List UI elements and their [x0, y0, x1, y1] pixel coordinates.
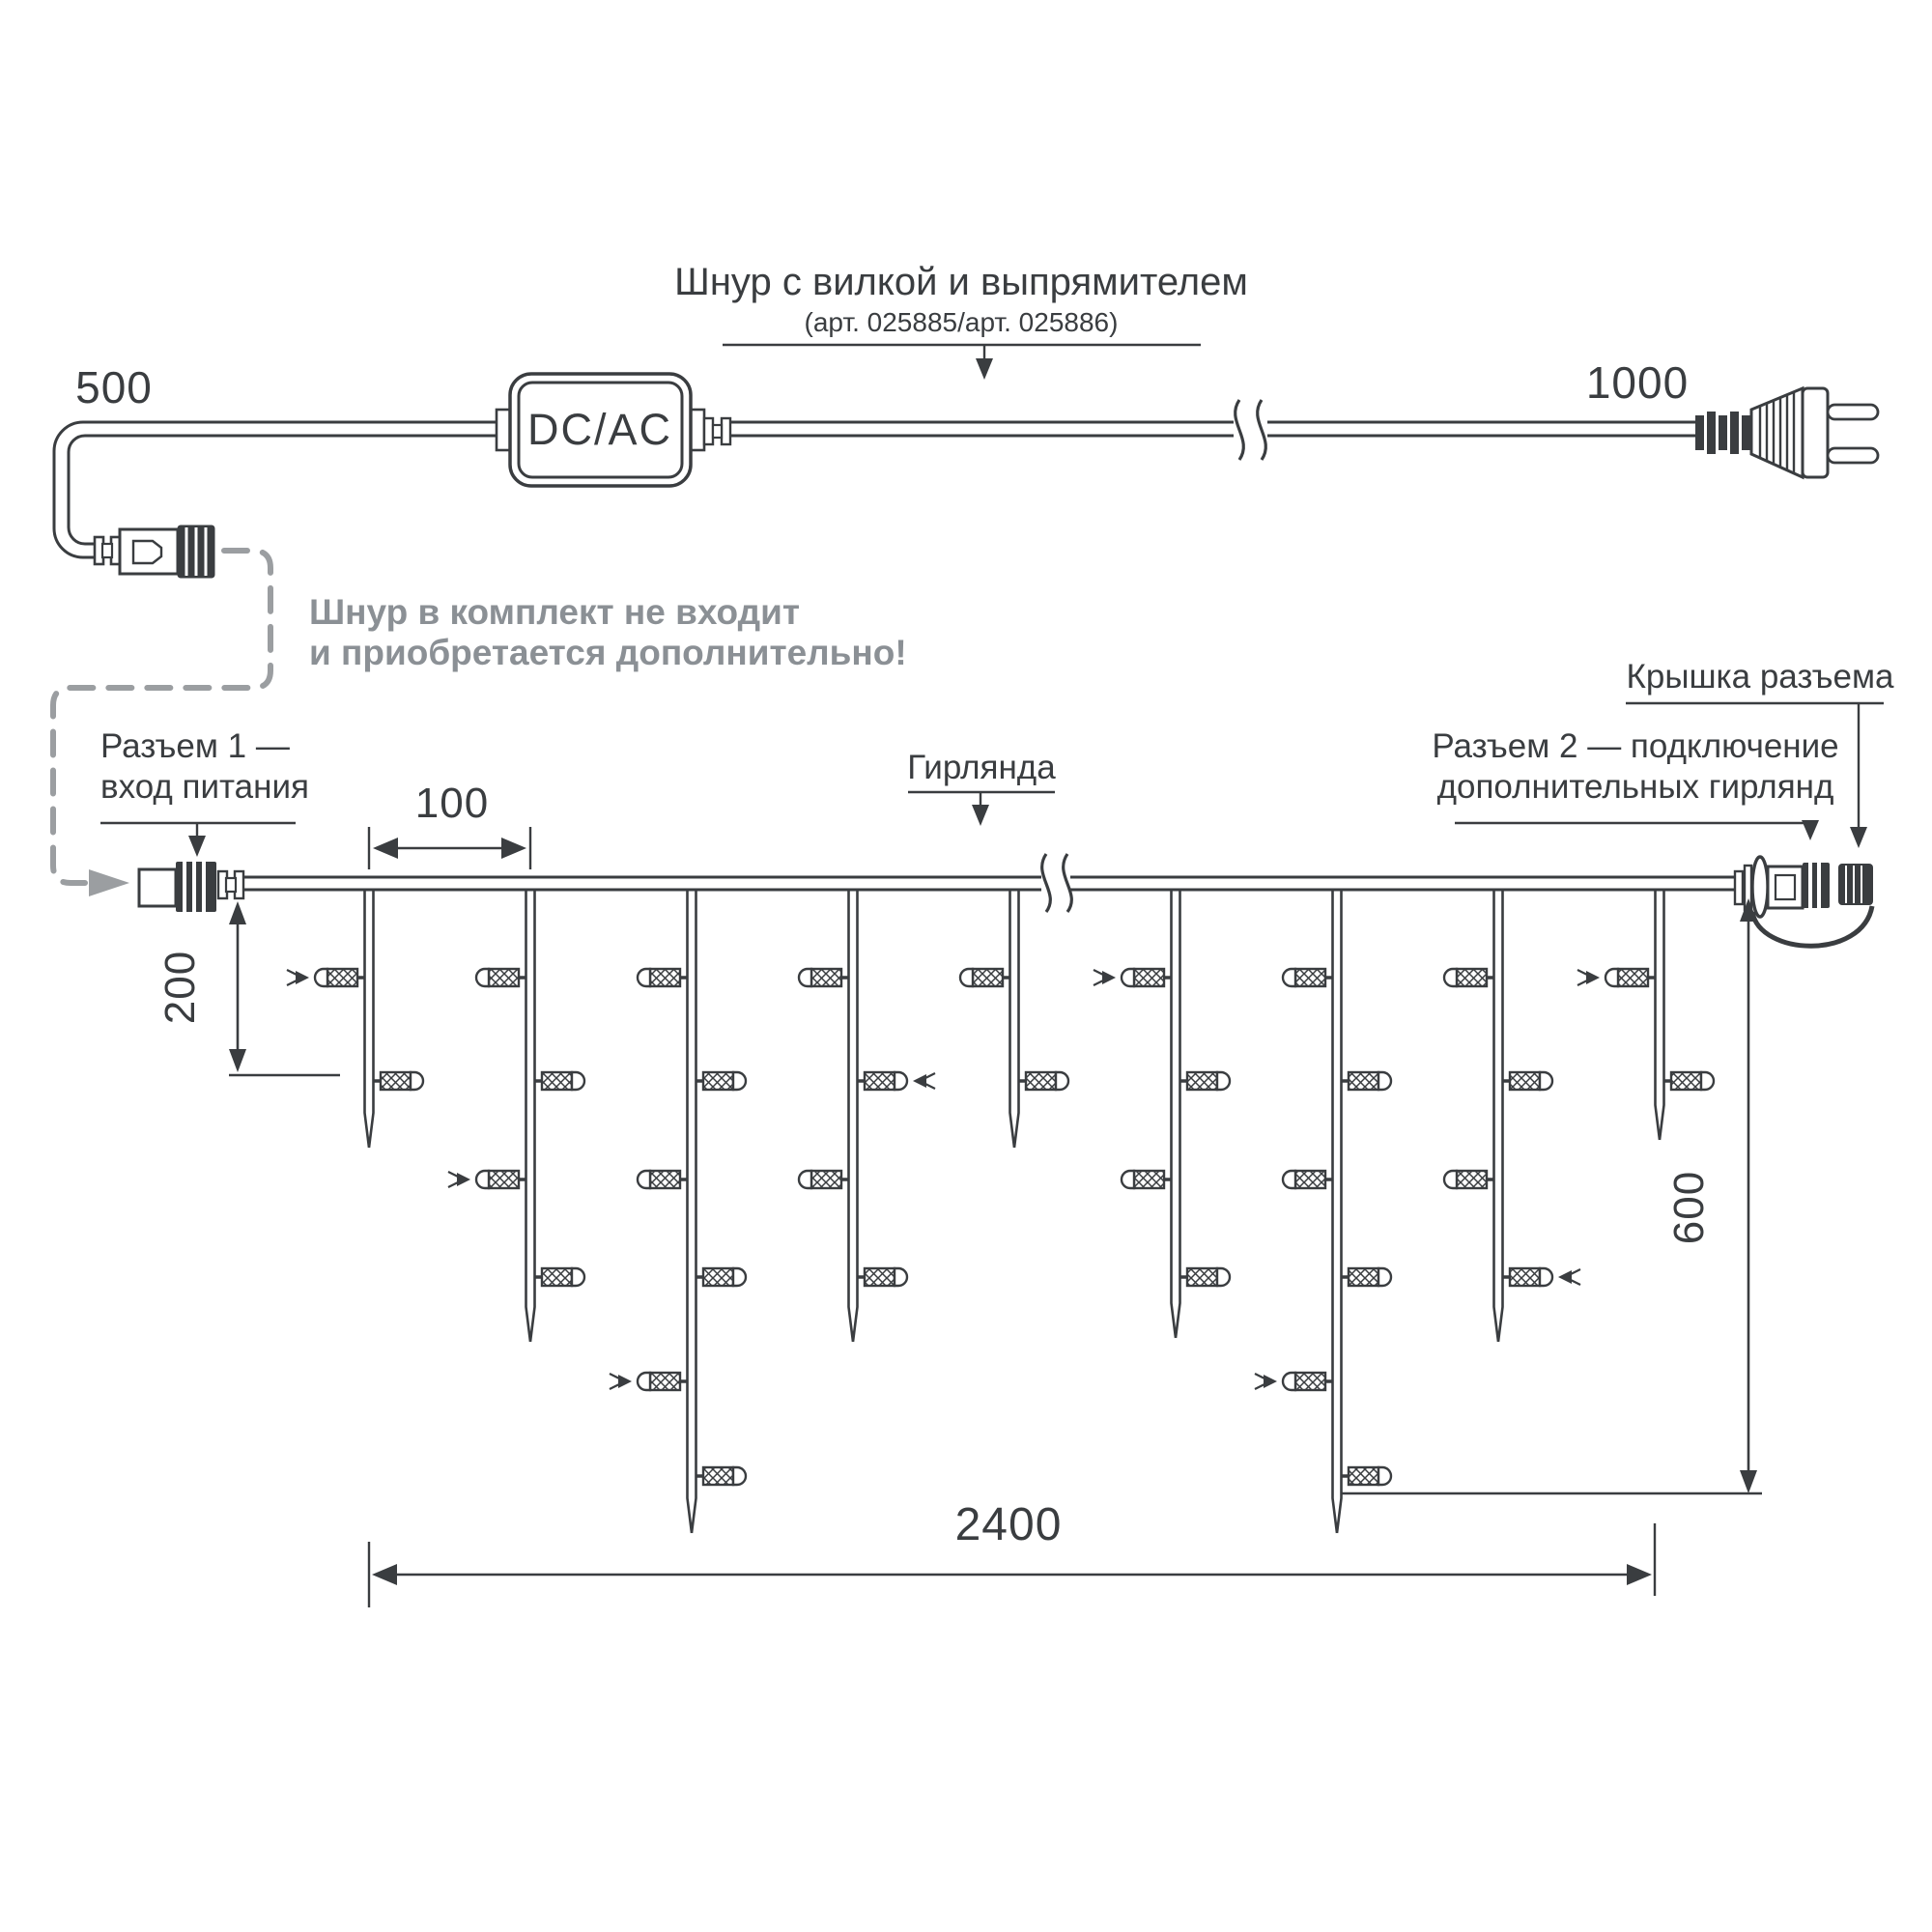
bulb-dome-icon [895, 1268, 907, 1286]
bulb-direction-marker-icon [1094, 970, 1116, 985]
bulb-dome-icon [638, 1373, 650, 1390]
bulb-dome-icon [1444, 1171, 1457, 1188]
dimension-100: 100 [369, 780, 530, 869]
icicle-drop [799, 890, 935, 1342]
bulb-dome-icon [799, 1171, 811, 1188]
note-line1: Шнур в комплект не входит [309, 592, 800, 632]
led-bulb [1180, 1268, 1231, 1286]
cord-break-mark [1236, 400, 1266, 460]
bulb-dome-icon [1283, 1171, 1295, 1188]
cord-length-500-label: 500 [75, 362, 153, 412]
connector2-label-line1: Разъем 2 — подключение [1432, 727, 1838, 765]
led-bulb [535, 1268, 585, 1286]
dc-ac-converter: DC/AC [497, 374, 730, 486]
dimension-600-value: 600 [1665, 1171, 1713, 1244]
bulb-dome-icon [733, 1268, 746, 1286]
bulb-dome-icon [1378, 1467, 1391, 1485]
connector1-label-line1: Разъем 1 — [100, 727, 290, 765]
bulb-direction-marker-icon [1558, 1269, 1580, 1285]
bulb-direction-marker-icon [287, 970, 309, 985]
cap-label: Крышка разъема [1626, 658, 1894, 696]
dimension-2400-value: 2400 [955, 1499, 1063, 1550]
led-bulb [1094, 969, 1172, 986]
led-bulb [1503, 1268, 1581, 1286]
not-included-note: Шнур в комплект не входит и приобретаетс… [309, 592, 907, 672]
led-bulb [1019, 1072, 1069, 1090]
led-bulb [696, 1072, 747, 1090]
icicle-drops [287, 890, 1714, 1533]
connector1-label-line2: вход питания [100, 768, 309, 806]
led-bulb [638, 969, 688, 986]
icicle-drop [1577, 890, 1714, 1140]
cord-left-segment-inner [69, 436, 497, 544]
led-bulb [799, 1171, 849, 1188]
led-bulb [1664, 1072, 1715, 1090]
bulb-dome-icon [1056, 1072, 1068, 1090]
dimension-200: 200 [156, 901, 340, 1075]
led-bulb [799, 969, 849, 986]
led-bulb [1444, 1171, 1494, 1188]
bulb-dome-icon [411, 1072, 423, 1090]
dimension-200-value: 200 [156, 951, 204, 1024]
cord-length-1000-label: 1000 [1586, 357, 1689, 408]
bulb-dome-icon [733, 1072, 746, 1090]
bulb-dome-icon [1217, 1072, 1230, 1090]
led-bulb [1180, 1072, 1231, 1090]
bulb-dome-icon [1122, 1171, 1134, 1188]
garland-wiring-diagram: 500 DC/AC [0, 0, 1932, 1932]
led-bulb [287, 969, 365, 986]
bulb-dome-icon [1378, 1268, 1391, 1286]
bulb-dome-icon [960, 969, 973, 986]
bulb-direction-marker-icon [1577, 970, 1600, 985]
bulb-dome-icon [733, 1467, 746, 1485]
bulb-direction-marker-icon [448, 1172, 470, 1187]
icicle-drop [448, 890, 584, 1342]
icicle-drop [1255, 890, 1391, 1533]
cap-lanyard [1752, 906, 1872, 946]
led-bulb [374, 1072, 424, 1090]
bulb-dome-icon [572, 1072, 584, 1090]
led-bulb [535, 1072, 585, 1090]
cord-output-connector [95, 526, 214, 578]
led-bulb [1444, 969, 1494, 986]
bulb-dome-icon [895, 1072, 907, 1090]
dimension-600: 600 [1342, 898, 1762, 1493]
garland-section: Разъем 1 — вход питания Гирлянда Разъем … [100, 658, 1894, 1607]
bulb-dome-icon [1283, 1373, 1295, 1390]
connector2-label-line2: дополнительных гирлянд [1437, 768, 1834, 806]
led-bulb [1577, 969, 1656, 986]
dashed-arrowhead [89, 869, 129, 896]
bulb-direction-marker-icon [610, 1374, 632, 1389]
led-bulb [960, 969, 1010, 986]
bulb-dome-icon [1605, 969, 1618, 986]
plug-prong-bottom [1828, 448, 1878, 463]
bulb-dome-icon [638, 969, 650, 986]
connector1-callout: Разъем 1 — вход питания [100, 727, 309, 857]
dimension-2400: 2400 [369, 1499, 1655, 1607]
plug-prong-top [1828, 405, 1878, 419]
bulb-dome-icon [1540, 1072, 1552, 1090]
cord-subtitle: (арт. 025885/арт. 025886) [805, 307, 1119, 337]
note-line2: и приобретается дополнительно! [309, 633, 907, 672]
connector-cap [1838, 864, 1873, 905]
bulb-dome-icon [476, 969, 489, 986]
cord-title-callout: Шнур с вилкой и выпрямителем (арт. 02588… [674, 261, 1248, 380]
cord-title: Шнур с вилкой и выпрямителем [674, 261, 1248, 303]
bulb-direction-marker-icon [1255, 1374, 1277, 1389]
bulb-dome-icon [1217, 1268, 1230, 1286]
bulb-dome-icon [476, 1171, 489, 1188]
bulb-dome-icon [638, 1171, 650, 1188]
led-bulb [476, 969, 526, 986]
bulb-dome-icon [1701, 1072, 1714, 1090]
led-bulb [1283, 969, 1333, 986]
icicle-drop [1094, 890, 1230, 1338]
led-bulb [1503, 1072, 1553, 1090]
bulb-dome-icon [1540, 1268, 1552, 1286]
garland-callout: Гирлянда [907, 749, 1056, 826]
mains-plug [1695, 388, 1878, 477]
garland-wire [243, 854, 1736, 912]
bulb-dome-icon [1122, 969, 1134, 986]
dc-ac-label: DC/AC [527, 405, 672, 454]
led-bulb [1122, 1171, 1172, 1188]
output-connector [1735, 857, 1873, 946]
led-bulb [1342, 1072, 1392, 1090]
garland-label: Гирлянда [907, 749, 1056, 786]
led-bulb [696, 1268, 747, 1286]
led-bulb [696, 1467, 747, 1485]
wire-break-mark [1042, 854, 1072, 912]
bulb-dome-icon [315, 969, 327, 986]
connector2-callout: Разъем 2 — подключение дополнительных ги… [1432, 727, 1838, 840]
cord-right-segment [730, 400, 1696, 460]
bulb-dome-icon [799, 969, 811, 986]
bulb-dome-icon [1283, 969, 1295, 986]
bulb-direction-marker-icon [913, 1073, 935, 1089]
led-bulb [638, 1171, 688, 1188]
led-bulb [1342, 1467, 1392, 1485]
icicle-drop [287, 890, 423, 1148]
bulb-dome-icon [1444, 969, 1457, 986]
icicle-drop [960, 890, 1068, 1148]
icicle-drop [610, 890, 746, 1533]
led-bulb [448, 1171, 526, 1188]
dashed-connection-path [53, 551, 270, 896]
bulb-dome-icon [572, 1268, 584, 1286]
icicle-drop [1444, 890, 1580, 1342]
led-bulb [1283, 1171, 1333, 1188]
dimension-100-value: 100 [415, 780, 489, 827]
led-bulb [1342, 1268, 1392, 1286]
led-bulb [858, 1072, 936, 1090]
led-bulb [1255, 1373, 1333, 1390]
input-connector [139, 862, 243, 912]
led-bulb [858, 1268, 908, 1286]
bulb-dome-icon [1378, 1072, 1391, 1090]
led-bulb [610, 1373, 688, 1390]
